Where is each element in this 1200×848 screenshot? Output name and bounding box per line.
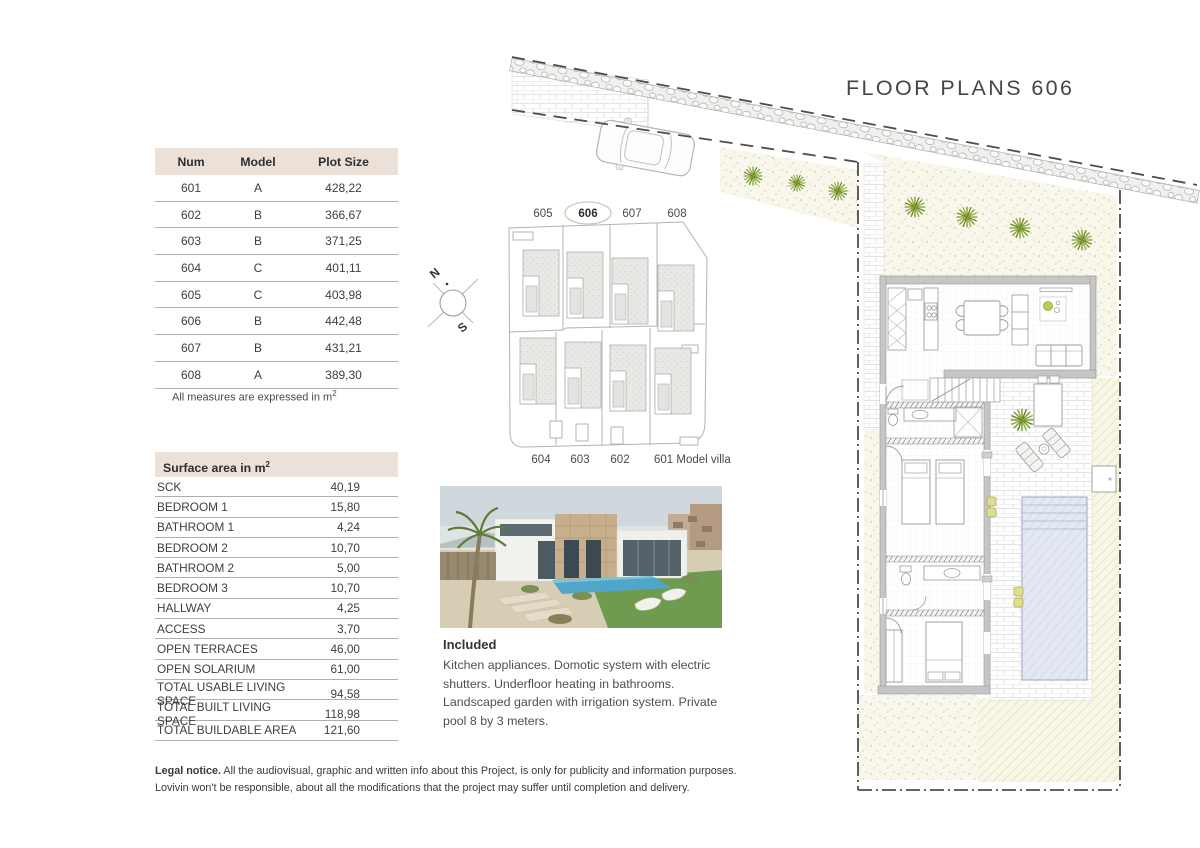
cell-num: 607 — [155, 341, 227, 355]
terrace-plant-icon — [1011, 409, 1033, 431]
surface-title-sup: 2 — [266, 460, 270, 469]
pool — [1022, 497, 1087, 680]
cell-model: C — [227, 261, 289, 275]
row-value: 46,00 — [302, 642, 360, 656]
table-row: TOTAL BUILT LIVING SPACE118,98 — [155, 700, 398, 720]
table-row: ACCESS3,70 — [155, 619, 398, 639]
row-value: 61,00 — [302, 662, 360, 676]
table-row: 602B366,67 — [155, 202, 398, 229]
cell-model: B — [227, 314, 289, 328]
row-label: SCK — [157, 480, 302, 494]
table-row: 601A428,22 — [155, 175, 398, 202]
cell-model: B — [227, 341, 289, 355]
row-value: 15,80 — [302, 500, 360, 514]
cell-size: 401,11 — [289, 261, 398, 275]
cell-size: 428,22 — [289, 181, 398, 195]
cell-model: B — [227, 208, 289, 222]
row-label: OPEN SOLARIUM — [157, 662, 302, 676]
table-row: 606B442,48 — [155, 308, 398, 335]
architectural-floor-plan — [505, 50, 1200, 805]
row-label: ACCESS — [157, 622, 302, 636]
row-label: HALLWAY — [157, 601, 302, 615]
table-row: OPEN TERRACES46,00 — [155, 639, 398, 659]
table-row: 608A389,30 — [155, 362, 398, 389]
cell-size: 371,25 — [289, 234, 398, 248]
table-row: BATHROOM 25,00 — [155, 558, 398, 578]
row-label: TOTAL BUILDABLE AREA — [157, 723, 302, 737]
row-value: 94,58 — [302, 687, 360, 701]
cell-model: C — [227, 288, 289, 302]
col-header-plot-size: Plot Size — [289, 155, 398, 169]
note-text: All measures are expressed in m — [172, 392, 332, 404]
cell-model: B — [227, 234, 289, 248]
measures-note: All measures are expressed in m2 — [172, 389, 337, 404]
sofa — [1036, 345, 1082, 366]
row-value: 10,70 — [302, 581, 360, 595]
row-value: 4,24 — [302, 520, 360, 534]
compass-north-label: N — [427, 265, 443, 281]
table-row: BATHROOM 14,24 — [155, 518, 398, 538]
cell-size: 366,67 — [289, 208, 398, 222]
outdoor-table — [1034, 384, 1062, 426]
compass-south-label: S — [455, 319, 470, 335]
plant-icon — [905, 197, 925, 217]
row-label: BATHROOM 1 — [157, 520, 302, 534]
living-shelf — [1012, 295, 1028, 345]
row-label: BATHROOM 2 — [157, 561, 302, 575]
plot-table-header: Num Model Plot Size — [155, 148, 398, 175]
table-row: BEDROOM 210,70 — [155, 538, 398, 558]
note-sup: 2 — [332, 389, 336, 398]
cell-size: 403,98 — [289, 288, 398, 302]
cell-size: 431,21 — [289, 341, 398, 355]
coffee-corner — [1040, 297, 1066, 321]
table-row: 607B431,21 — [155, 335, 398, 362]
table-row: OPEN SOLARIUM61,00 — [155, 660, 398, 680]
table-row: 604C401,11 — [155, 255, 398, 282]
row-value: 121,60 — [302, 723, 360, 737]
row-value: 40,19 — [302, 480, 360, 494]
plant-icon — [1010, 218, 1030, 238]
cell-num: 602 — [155, 208, 227, 222]
table-row: HALLWAY4,25 — [155, 599, 398, 619]
col-header-num: Num — [155, 155, 227, 169]
staircase — [930, 378, 1000, 402]
plant-icon — [744, 167, 762, 185]
table-row: TOTAL USABLE LIVING SPACE94,58 — [155, 680, 398, 700]
row-label: BEDROOM 1 — [157, 500, 302, 514]
cell-num: 605 — [155, 288, 227, 302]
cell-num: 604 — [155, 261, 227, 275]
cell-model: A — [227, 181, 289, 195]
plant-icon — [1072, 230, 1092, 250]
cell-num: 608 — [155, 368, 227, 382]
cell-model: A — [227, 368, 289, 382]
surface-title: Surface area in m — [163, 461, 266, 475]
surface-area-table: Surface area in m2 SCK40,19 BEDROOM 115,… — [155, 452, 398, 741]
street-area — [512, 62, 858, 228]
plant-icon — [789, 175, 805, 191]
row-value: 10,70 — [302, 541, 360, 555]
plant-icon — [829, 182, 847, 200]
cell-num: 601 — [155, 181, 227, 195]
cell-num: 603 — [155, 234, 227, 248]
table-row: SCK40,19 — [155, 477, 398, 497]
row-value: 5,00 — [302, 561, 360, 575]
table-row: 605C403,98 — [155, 282, 398, 309]
surface-table-header: Surface area in m2 — [155, 452, 398, 477]
row-label: BEDROOM 2 — [157, 541, 302, 555]
gravel-garden-bottom — [858, 695, 978, 780]
cell-size: 389,30 — [289, 368, 398, 382]
cell-num: 606 — [155, 314, 227, 328]
side-table — [1039, 444, 1049, 454]
dining-table — [956, 301, 1008, 335]
table-row: TOTAL BUILDABLE AREA121,60 — [155, 721, 398, 741]
table-row: BEDROOM 310,70 — [155, 578, 398, 598]
legal-bold: Legal notice. — [155, 765, 221, 777]
compass-icon: N S — [427, 265, 478, 335]
floor-plan-page: FLOOR PLANS 606 Num Model Plot Size 601A… — [0, 0, 1200, 848]
row-value: 4,25 — [302, 601, 360, 615]
row-value: 118,98 — [302, 707, 360, 721]
plot-size-table: Num Model Plot Size 601A428,22 602B366,6… — [155, 148, 398, 389]
plant-icon — [957, 207, 977, 227]
pool-equipment-box — [1092, 466, 1116, 492]
table-row: 603B371,25 — [155, 228, 398, 255]
cell-size: 442,48 — [289, 314, 398, 328]
photo-fence — [440, 552, 496, 580]
row-label: BEDROOM 3 — [157, 581, 302, 595]
row-value: 3,70 — [302, 622, 360, 636]
row-label: OPEN TERRACES — [157, 642, 302, 656]
col-header-model: Model — [227, 155, 289, 169]
table-row: BEDROOM 115,80 — [155, 497, 398, 517]
tv-sideboard — [1040, 288, 1072, 292]
